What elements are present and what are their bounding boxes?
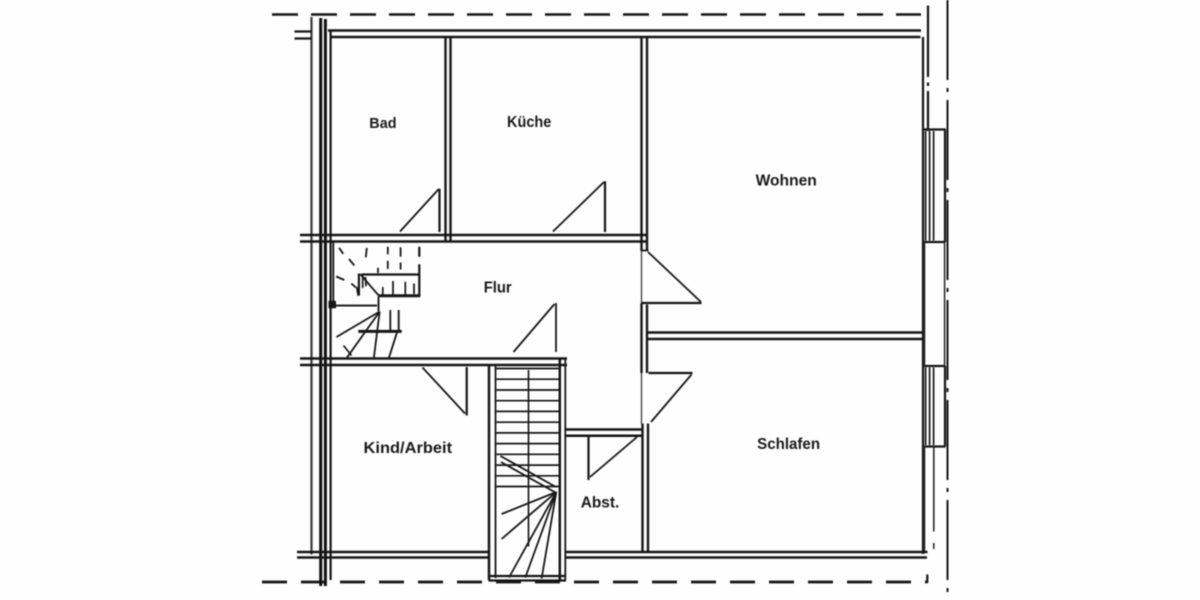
- svg-text:Küche: Küche: [507, 114, 552, 131]
- svg-text:Bad: Bad: [369, 115, 396, 132]
- svg-text:Schlafen: Schlafen: [757, 436, 820, 453]
- svg-text:Flur: Flur: [484, 280, 512, 297]
- svg-text:Kind/Arbeit: Kind/Arbeit: [364, 440, 453, 457]
- svg-text:Wohnen: Wohnen: [756, 172, 817, 189]
- svg-text:Abst.: Abst.: [581, 494, 620, 511]
